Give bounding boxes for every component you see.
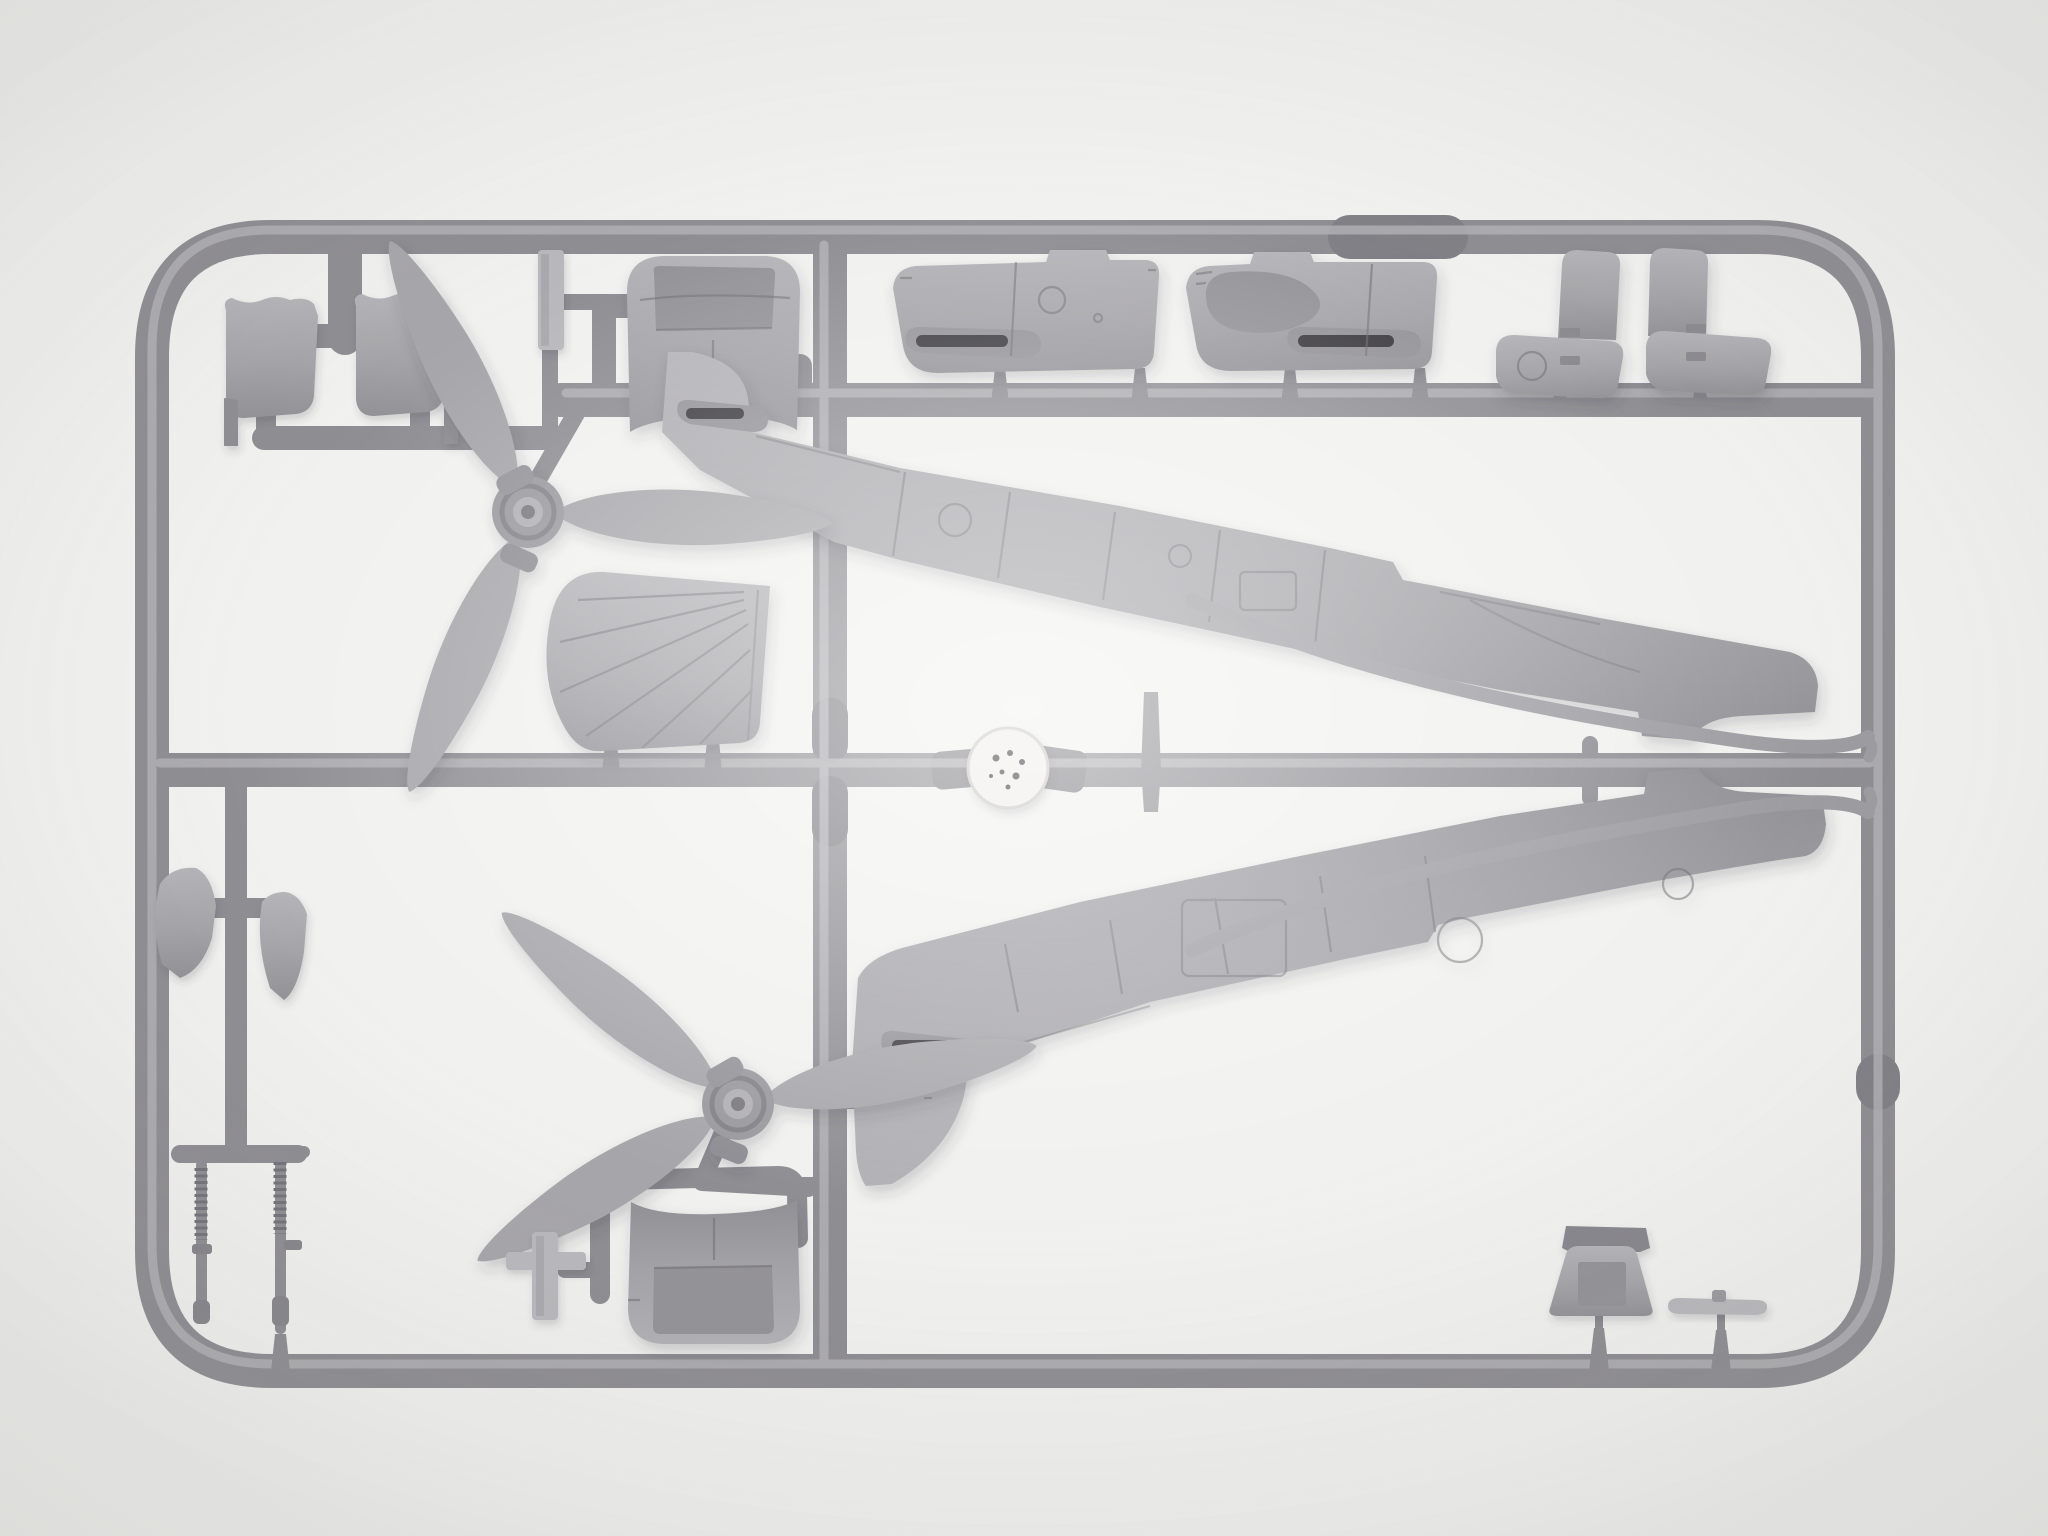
plate-foot-left (224, 398, 238, 446)
photo-canvas (0, 0, 2048, 1536)
windscreen-part (1549, 1226, 1652, 1316)
exhaust-slot (916, 335, 1008, 347)
cowl-deck-lower (628, 1200, 800, 1344)
fairing-strip-lower-hook (1866, 792, 1872, 811)
bulkhead-plate-left (225, 297, 318, 418)
deck-recess (653, 1266, 774, 1334)
vertical-sleeve-lower (812, 776, 848, 846)
flat-strip-top (538, 250, 564, 350)
gate-fuselage-lower (1141, 768, 1161, 812)
sprue-photo (0, 0, 2048, 1536)
cowl-trough (1496, 335, 1623, 398)
cowling-panel-right (1186, 252, 1437, 371)
molding-stamp-disc (968, 728, 1048, 808)
windscreen-panel (1578, 1262, 1626, 1306)
gate-fuselage-upper (1141, 692, 1161, 772)
top-rail-sleeve (1328, 215, 1468, 259)
cowl-trough (1646, 331, 1771, 395)
exhaust-slot (1298, 335, 1394, 347)
deck-recess (654, 266, 776, 330)
cowl-column (1558, 250, 1620, 340)
fairing-strip-upper-hook (1866, 738, 1872, 757)
radiator-fairing (546, 572, 770, 751)
vertical-sleeve-upper (812, 698, 848, 762)
cowling-panel-left (893, 250, 1159, 373)
